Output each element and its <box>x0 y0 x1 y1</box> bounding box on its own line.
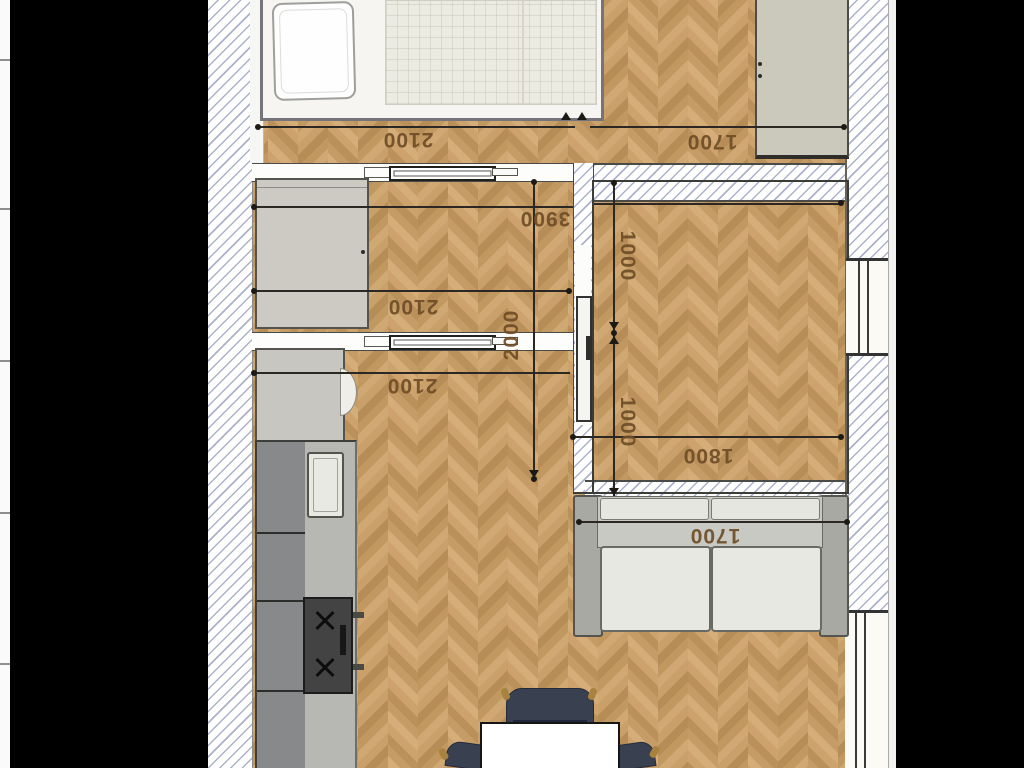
handle-dot <box>361 250 365 254</box>
door-jamb <box>353 612 364 618</box>
fridge[interactable] <box>255 348 345 444</box>
door-pocket <box>364 167 391 178</box>
letterbox-left <box>10 0 208 768</box>
wardrobe-bedroom[interactable] <box>755 0 849 159</box>
dim-label: 3900 <box>513 206 577 230</box>
door-jamb <box>353 664 364 670</box>
wall-left <box>208 0 253 768</box>
back-cushion <box>711 498 820 520</box>
dim-label: 1000 <box>615 224 639 288</box>
dim-arrow <box>609 488 619 496</box>
dim-label: 2000 <box>500 303 524 367</box>
sliding-door[interactable] <box>389 335 496 350</box>
letterbox-right <box>896 0 1024 768</box>
page-edge-left <box>0 0 10 768</box>
dim-arrow <box>609 322 619 330</box>
sliding-door[interactable] <box>389 166 496 181</box>
ruler-tick <box>0 512 10 514</box>
dim-line <box>590 126 845 128</box>
ruler-tick <box>0 59 10 61</box>
page-edge-right <box>888 0 896 768</box>
duvet <box>385 0 597 105</box>
sink[interactable] <box>307 452 344 518</box>
burner-icon <box>313 655 337 679</box>
screenshot-stage: 2100 1700 3900 2100 2100 2000 1000 1000 … <box>0 0 1024 768</box>
pillow <box>272 1 357 101</box>
handle-dot <box>758 74 762 78</box>
floor-plan-canvas[interactable]: 2100 1700 3900 2100 2100 2000 1000 1000 … <box>208 0 896 768</box>
burner-icon <box>313 608 337 632</box>
seat-cushion <box>711 546 822 632</box>
dim-arrow <box>561 112 571 120</box>
oven-handle <box>340 625 346 655</box>
kitchen-cabinets[interactable] <box>255 440 309 768</box>
sofa-armrest <box>819 495 849 637</box>
window <box>846 258 888 356</box>
door-track <box>492 168 518 176</box>
dim-label: 2100 <box>376 127 440 151</box>
dim-arrow <box>609 336 619 344</box>
window <box>845 610 888 768</box>
dim-label: 1800 <box>676 443 740 467</box>
dim-line <box>594 203 843 205</box>
dim-label: 2100 <box>381 294 445 318</box>
seat-cushion <box>600 546 711 632</box>
back-cushion <box>600 498 709 520</box>
door-pocket <box>364 336 391 347</box>
dim-label: 1700 <box>683 523 747 547</box>
bed[interactable] <box>260 0 604 121</box>
wardrobe-middle-room[interactable] <box>255 178 369 329</box>
ruler-tick <box>0 208 10 210</box>
chair[interactable] <box>506 688 594 726</box>
dim-label: 1000 <box>615 390 639 454</box>
dim-label: 2100 <box>380 373 444 397</box>
dim-line <box>253 290 570 292</box>
ruler-tick <box>0 663 10 665</box>
sofa[interactable] <box>573 492 845 636</box>
handle-dot <box>758 62 762 66</box>
ruler-tick <box>0 360 10 362</box>
dim-label: 1700 <box>680 129 744 153</box>
dim-arrow <box>577 112 587 120</box>
dining-table[interactable] <box>480 722 620 768</box>
